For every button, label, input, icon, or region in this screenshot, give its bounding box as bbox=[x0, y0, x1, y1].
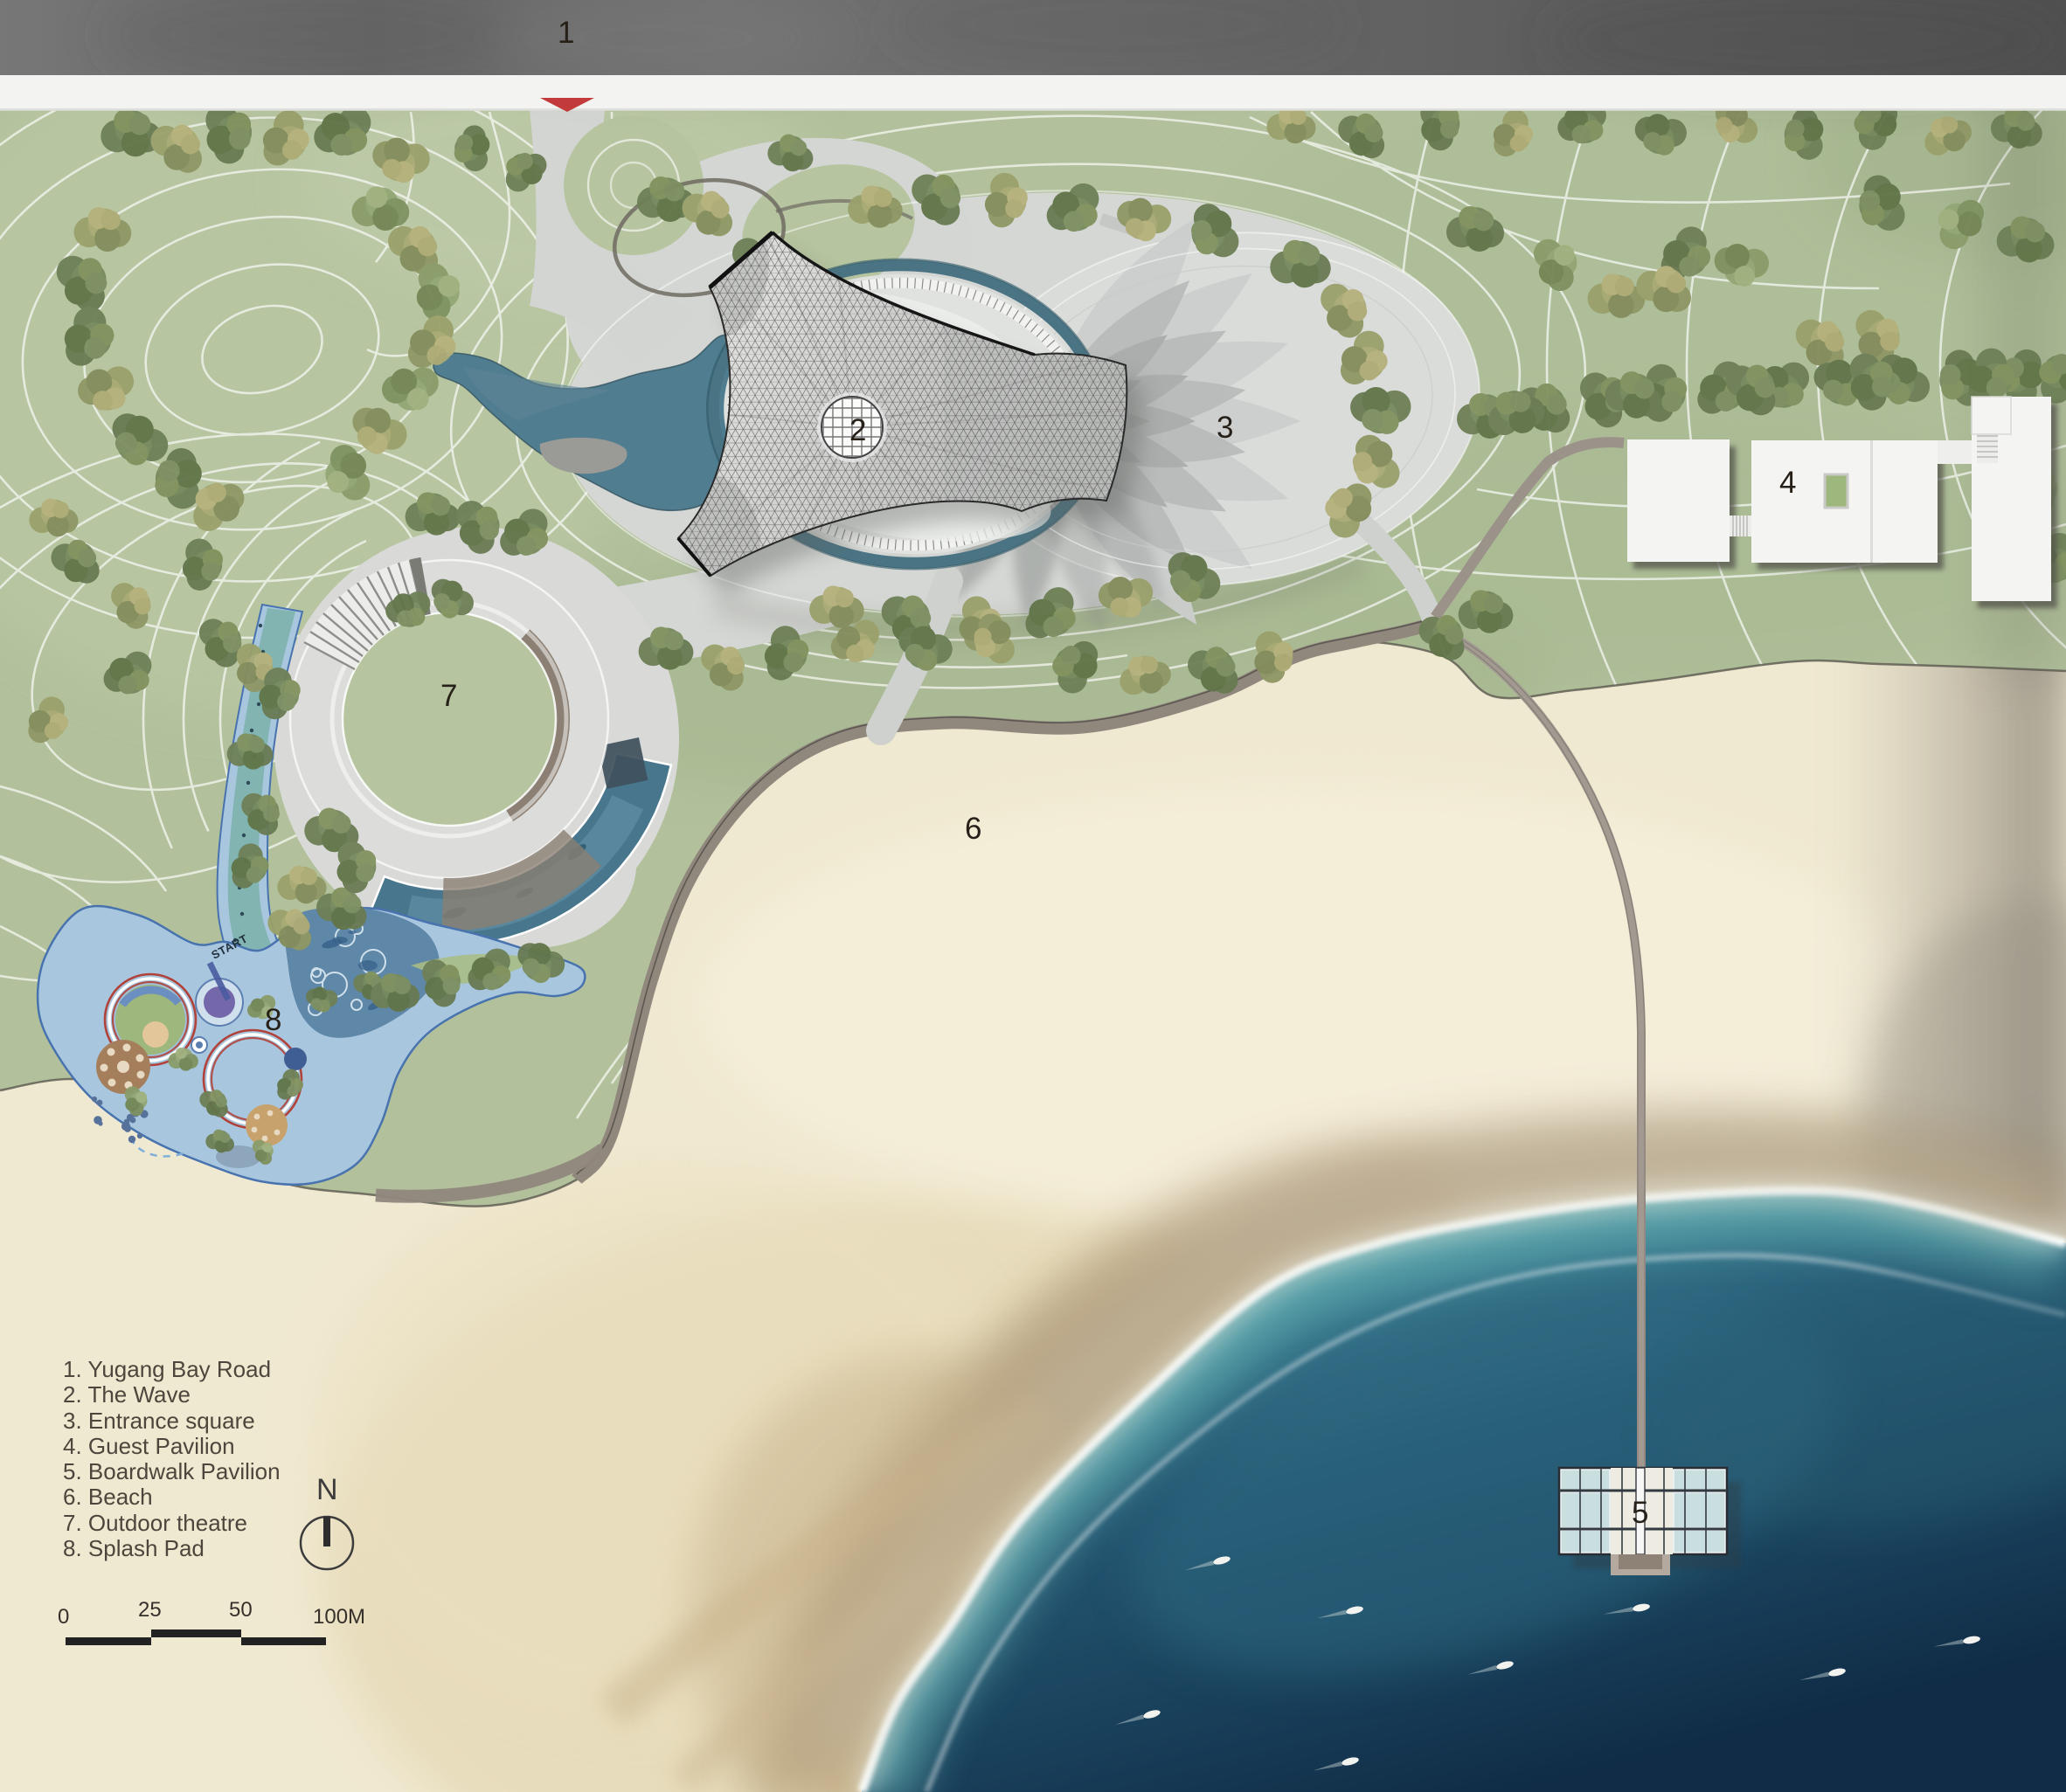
svg-text:N: N bbox=[316, 1473, 338, 1506]
svg-text:1. Yugang Bay Road: 1. Yugang Bay Road bbox=[63, 1356, 271, 1382]
svg-text:8. Splash Pad: 8. Splash Pad bbox=[63, 1535, 205, 1561]
svg-text:2. The Wave: 2. The Wave bbox=[63, 1381, 191, 1408]
svg-text:6: 6 bbox=[965, 812, 981, 846]
svg-text:5. Boardwalk Pavilion: 5. Boardwalk Pavilion bbox=[63, 1458, 281, 1484]
svg-text:3: 3 bbox=[1217, 411, 1233, 445]
svg-text:100M: 100M bbox=[313, 1605, 365, 1629]
svg-text:3. Entrance square: 3. Entrance square bbox=[63, 1408, 255, 1434]
svg-text:4: 4 bbox=[1779, 466, 1796, 500]
svg-text:50: 50 bbox=[229, 1598, 253, 1622]
svg-text:2: 2 bbox=[849, 413, 866, 447]
svg-text:0: 0 bbox=[58, 1605, 69, 1629]
svg-text:5: 5 bbox=[1632, 1496, 1648, 1530]
svg-text:7: 7 bbox=[440, 679, 457, 713]
svg-text:25: 25 bbox=[138, 1598, 162, 1622]
svg-text:8: 8 bbox=[265, 1003, 281, 1037]
svg-text:6. Beach: 6. Beach bbox=[63, 1484, 153, 1510]
svg-text:1: 1 bbox=[558, 16, 574, 50]
svg-text:4. Guest Pavilion: 4. Guest Pavilion bbox=[63, 1433, 235, 1459]
svg-text:7. Outdoor theatre: 7. Outdoor theatre bbox=[63, 1510, 247, 1536]
